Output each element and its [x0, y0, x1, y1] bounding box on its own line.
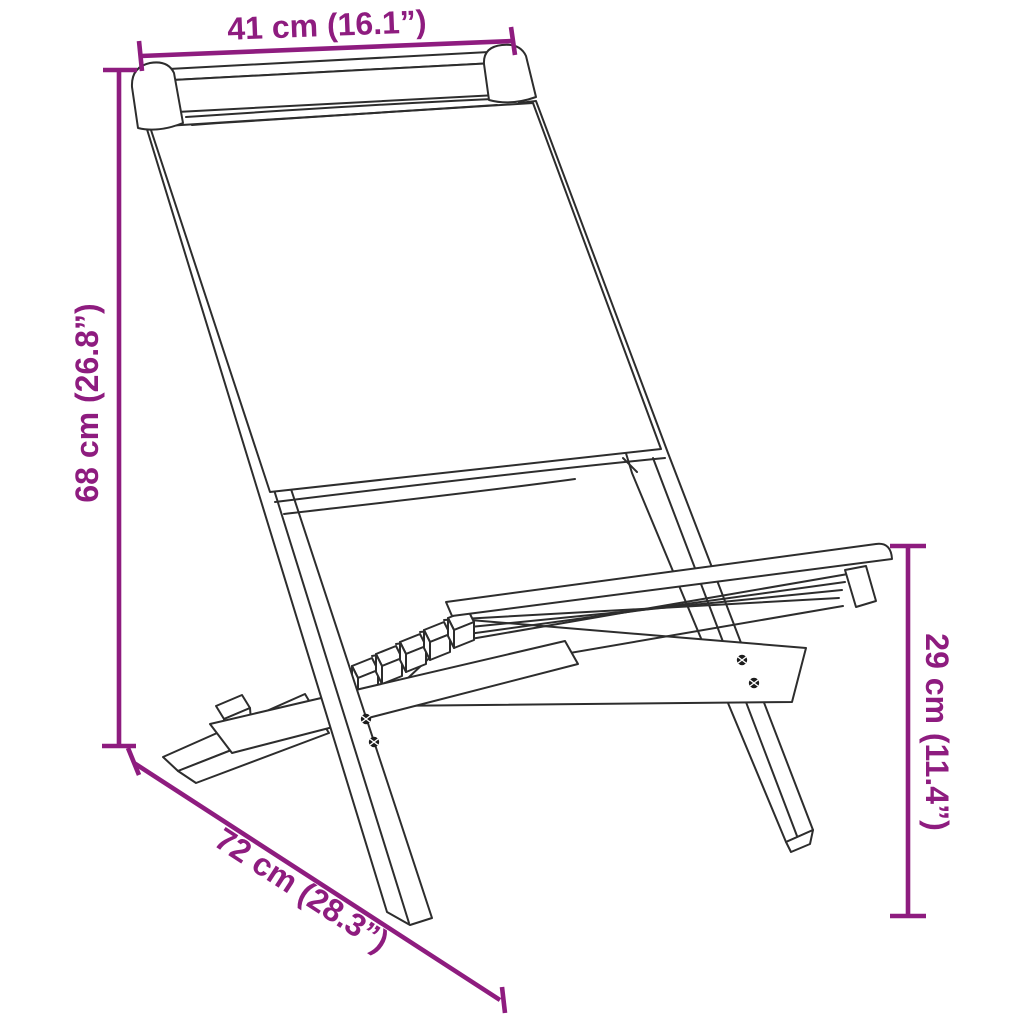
total-height-dimension-label: 68 cm (26.8”) [69, 303, 105, 502]
screw-icon [369, 737, 379, 747]
dimension-tick [128, 748, 139, 775]
dimension-tick [139, 41, 142, 71]
dimension-tick [502, 987, 505, 1013]
back-width-dimension-label: 41 cm (16.1”) [227, 3, 427, 47]
chair-right-apron-end [845, 566, 876, 607]
chair-line-drawing [132, 45, 892, 925]
screw-icon [749, 678, 759, 688]
chair-top-rail-right-cap [484, 45, 536, 103]
dimension-total-height [102, 70, 137, 746]
chair-fabric-backrest [150, 103, 665, 514]
diagram-svg: 41 cm (16.1”) 68 cm (26.8”) 72 cm (28.3”… [0, 0, 1024, 1024]
screw-icon [361, 714, 371, 724]
product-dimension-diagram: 41 cm (16.1”) 68 cm (26.8”) 72 cm (28.3”… [0, 0, 1024, 1024]
seat-height-dimension-label: 29 cm (11.4”) [919, 633, 955, 830]
page: { "diagram": { "type": "product-dimensio… [0, 0, 1024, 1024]
screw-icon [737, 655, 747, 665]
